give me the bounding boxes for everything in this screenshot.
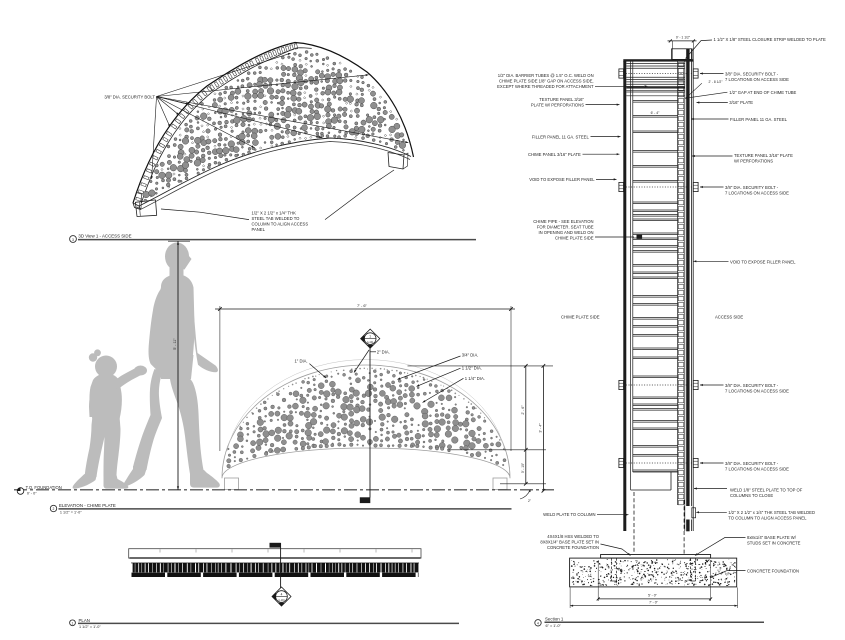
svg-text:CONCRETE FOUNDATION: CONCRETE FOUNDATION bbox=[547, 545, 599, 550]
svg-text:6' - 4": 6' - 4" bbox=[651, 111, 660, 115]
svg-text:0' - 0": 0' - 0" bbox=[27, 492, 37, 496]
svg-text:WELD PLATE TO COLUMN: WELD PLATE TO COLUMN bbox=[543, 512, 595, 517]
svg-text:1/2" DIA. BARRIER TUBES @ 1.5": 1/2" DIA. BARRIER TUBES @ 1.5" O.C. WELD… bbox=[498, 73, 594, 78]
svg-text:1" DIA.: 1" DIA. bbox=[294, 359, 307, 364]
svg-text:ELEVATION - CHIME PLATE: ELEVATION - CHIME PLATE bbox=[59, 503, 116, 508]
svg-text:CHIME PLATE SIDE: CHIME PLATE SIDE bbox=[555, 236, 594, 241]
svg-text:3/8" DIA. SECURITY BOLT -: 3/8" DIA. SECURITY BOLT - bbox=[725, 461, 779, 466]
svg-text:1/2" GAP AT END OF CHIME TUBE: 1/2" GAP AT END OF CHIME TUBE bbox=[729, 90, 796, 95]
svg-text:A-101: A-101 bbox=[278, 599, 285, 602]
svg-text:5' - 0": 5' - 0" bbox=[648, 593, 657, 597]
svg-text:3' - 4": 3' - 4" bbox=[539, 423, 543, 433]
svg-text:TO COLUMN TO ALIGN ACCESS PANE: TO COLUMN TO ALIGN ACCESS PANEL bbox=[728, 516, 807, 521]
svg-text:3D View 1 - ACCESS SIDE: 3D View 1 - ACCESS SIDE bbox=[78, 234, 131, 239]
svg-text:A-101: A-101 bbox=[367, 341, 374, 344]
svg-text:8x8x1/4" BASE PLATE W/: 8x8x1/4" BASE PLATE W/ bbox=[747, 535, 797, 540]
svg-text:COLUMNS TO CLOSE: COLUMNS TO CLOSE bbox=[730, 493, 773, 498]
svg-text:7' - 6": 7' - 6" bbox=[357, 303, 368, 308]
svg-text:7 LOCATIONS ON ACCESS SIDE: 7 LOCATIONS ON ACCESS SIDE bbox=[725, 467, 789, 472]
svg-text:7 LOCATIONS ON ACCESS SIDE: 7 LOCATIONS ON ACCESS SIDE bbox=[725, 388, 789, 393]
svg-text:FOR DIAMETER. SEAT TUBE: FOR DIAMETER. SEAT TUBE bbox=[537, 225, 594, 230]
svg-text:TEXTURE PANEL 3/16" PLATE: TEXTURE PANEL 3/16" PLATE bbox=[734, 153, 793, 158]
svg-text:2' - 6": 2' - 6" bbox=[521, 405, 525, 415]
svg-text:FILLER PANEL 11 GA. STEEL: FILLER PANEL 11 GA. STEEL bbox=[730, 117, 788, 122]
svg-text:TEXTURE PANEL 3/16": TEXTURE PANEL 3/16" bbox=[539, 97, 584, 102]
svg-text:4: 4 bbox=[281, 592, 283, 596]
svg-text:3/8" DIA. SECURITY BOLT -: 3/8" DIA. SECURITY BOLT - bbox=[725, 71, 779, 76]
svg-text:1 1/2" X 1/8" STEEL CLOSURE ST: 1 1/2" X 1/8" STEEL CLOSURE STRIP WELDED… bbox=[714, 37, 827, 42]
svg-text:W/ PERFORATIONS: W/ PERFORATIONS bbox=[734, 158, 773, 163]
svg-text:3/16" PLATE: 3/16" PLATE bbox=[729, 100, 753, 105]
svg-text:1 1/4" DIA.: 1 1/4" DIA. bbox=[465, 376, 485, 381]
svg-text:3/8" DIA. SECURITY BOLT -: 3/8" DIA. SECURITY BOLT - bbox=[725, 383, 779, 388]
svg-text:CHIME PANEL 3/16" PLATE: CHIME PANEL 3/16" PLATE bbox=[528, 152, 581, 157]
svg-text:CHIME PIPE - SEE ELEVATION: CHIME PIPE - SEE ELEVATION bbox=[533, 219, 593, 224]
svg-text:VOID TO EXPOSE FILLER PANEL: VOID TO EXPOSE FILLER PANEL bbox=[730, 259, 796, 264]
svg-text:Section 1: Section 1 bbox=[545, 616, 564, 621]
svg-text:STEEL TAB WELDED TO: STEEL TAB WELDED TO bbox=[252, 216, 301, 221]
svg-text:2' - 8 1/2": 2' - 8 1/2" bbox=[709, 80, 724, 84]
svg-text:PLAN: PLAN bbox=[79, 618, 90, 623]
svg-text:1 1/2" = 1'-0": 1 1/2" = 1'-0" bbox=[79, 625, 101, 629]
svg-text:ACCESS SIDE: ACCESS SIDE bbox=[715, 314, 743, 319]
svg-text:CONCRETE FOUNDATION: CONCRETE FOUNDATION bbox=[747, 568, 799, 573]
svg-text:1/2" X 2 1/2" x 1/4" THK: 1/2" X 2 1/2" x 1/4" THK bbox=[252, 211, 297, 216]
svg-text:2" DIA.: 2" DIA. bbox=[377, 350, 390, 355]
svg-text:4: 4 bbox=[537, 622, 539, 626]
svg-text:3/8" DIA. SECURITY BOLT: 3/8" DIA. SECURITY BOLT bbox=[104, 95, 155, 100]
svg-text:STUDS SET IN CONCRETE: STUDS SET IN CONCRETE bbox=[747, 541, 801, 546]
svg-text:8X8X1/4" BASE PLATE SET IN: 8X8X1/4" BASE PLATE SET IN bbox=[540, 540, 599, 545]
svg-text:4X4X1/8 HSS WELDED TO: 4X4X1/8 HSS WELDED TO bbox=[547, 534, 599, 539]
svg-text:2: 2 bbox=[53, 507, 55, 511]
svg-text:FILLER PANEL 11 GA. STEEL: FILLER PANEL 11 GA. STEEL bbox=[532, 134, 590, 139]
svg-text:5' - 11": 5' - 11" bbox=[173, 338, 177, 350]
svg-text:PANEL: PANEL bbox=[252, 227, 266, 232]
svg-text:3/8" DIA. SECURITY BOLT -: 3/8" DIA. SECURITY BOLT - bbox=[725, 185, 779, 190]
svg-text:T.O. FOUNDATION: T.O. FOUNDATION bbox=[26, 485, 62, 490]
svg-text:7' - 0": 7' - 0" bbox=[649, 600, 658, 604]
svg-text:PLATE W/ PERFORATIONS: PLATE W/ PERFORATIONS bbox=[531, 102, 584, 107]
svg-text:0' - 1 1/2": 0' - 1 1/2" bbox=[676, 35, 691, 39]
svg-text:WELD 1/8" STEEL PLATE TO TOP O: WELD 1/8" STEEL PLATE TO TOP OF bbox=[730, 487, 803, 492]
svg-text:7 LOCATIONS ON ACCESS SIDE: 7 LOCATIONS ON ACCESS SIDE bbox=[725, 77, 789, 82]
svg-text:3/4" DIA.: 3/4" DIA. bbox=[462, 352, 479, 357]
svg-text:7 LOCATIONS ON ACCESS SIDE: 7 LOCATIONS ON ACCESS SIDE bbox=[725, 190, 789, 195]
svg-text:1/2" X 2 1/2" x 1/4" THK STEE: 1/2" X 2 1/2" x 1/4" THK STEEL TAB WELDE… bbox=[728, 510, 815, 515]
svg-text:1: 1 bbox=[369, 334, 371, 338]
svg-text:EXCEPT WHERE THREADED FOR ATTA: EXCEPT WHERE THREADED FOR ATTACHMENT bbox=[497, 84, 594, 89]
svg-text:6" = 1'-0": 6" = 1'-0" bbox=[546, 624, 562, 628]
svg-text:1 1/2" = 1'-0": 1 1/2" = 1'-0" bbox=[60, 510, 82, 514]
svg-text:0' - 10": 0' - 10" bbox=[521, 462, 525, 473]
svg-text:CHIME PLATE SIDE 1/8" GAP ON: CHIME PLATE SIDE 1/8" GAP ON ACCESS SIDE… bbox=[499, 79, 594, 84]
svg-text:3: 3 bbox=[72, 238, 74, 242]
svg-text:COLUMN TO ALIGN ACCESS: COLUMN TO ALIGN ACCESS bbox=[252, 222, 309, 227]
svg-text:VOID TO EXPOSE FILLER PANEL: VOID TO EXPOSE FILLER PANEL bbox=[529, 177, 595, 182]
svg-text:1: 1 bbox=[72, 622, 74, 626]
svg-text:IN OPENING AND WELD ON: IN OPENING AND WELD ON bbox=[538, 230, 593, 235]
svg-text:CHIME PLATE SIDE: CHIME PLATE SIDE bbox=[561, 314, 600, 319]
svg-text:2": 2" bbox=[528, 499, 531, 503]
